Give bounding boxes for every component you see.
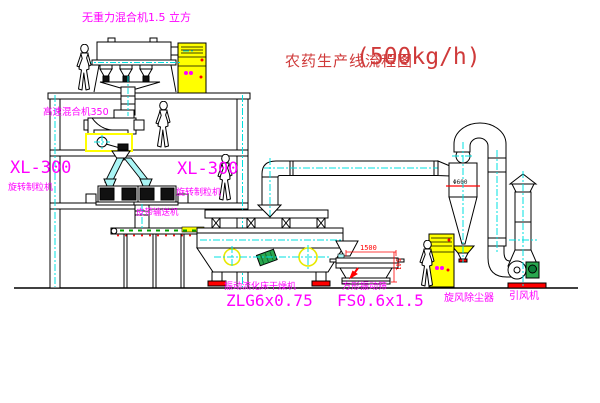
worker-1	[77, 44, 91, 90]
dim-screen-height: 541	[394, 258, 402, 271]
label-dryer-model: ZLG6x0.75	[226, 293, 313, 309]
label-cyclone: 旋风除尘器	[444, 294, 494, 304]
granulator-left	[86, 179, 140, 205]
process-flow-diagram: 农药生产线流程图 (500kg/h) 无重力混合机1.5 立方 高速混合机350…	[0, 0, 600, 403]
dim-cyclone-diameter: Φ600	[453, 179, 467, 186]
exhaust-duct	[258, 161, 438, 217]
label-granulator-left-name: 旋转制粒机	[8, 184, 53, 193]
y-chute	[105, 158, 150, 182]
worker-2	[156, 101, 170, 147]
gravity-mixer	[92, 38, 183, 115]
label-granulator-right-name: 旋转制粒机	[176, 189, 221, 198]
dim-screen-length: 1500	[360, 244, 377, 252]
vibrating-screen	[330, 250, 404, 284]
dryer-springs	[212, 218, 325, 228]
label-fan: 引风机	[509, 292, 539, 302]
label-gravity-mixer: 无重力混合机1.5 立方	[82, 12, 191, 23]
label-granulator-left-model: XL-300	[10, 160, 71, 177]
fluid-bed-dryer	[197, 210, 358, 286]
label-high-speed-mixer: 高速混合机350	[43, 108, 109, 118]
label-granulator-right-model: XL-300	[177, 161, 238, 178]
belt-conveyor	[111, 227, 207, 288]
induced-draft-fan	[508, 261, 546, 288]
label-screen-model: FS0.6x1.5	[337, 293, 424, 309]
label-belt-conveyor: 皮带输送机	[136, 209, 179, 218]
diagram-capacity: (500kg/h)	[356, 44, 481, 70]
